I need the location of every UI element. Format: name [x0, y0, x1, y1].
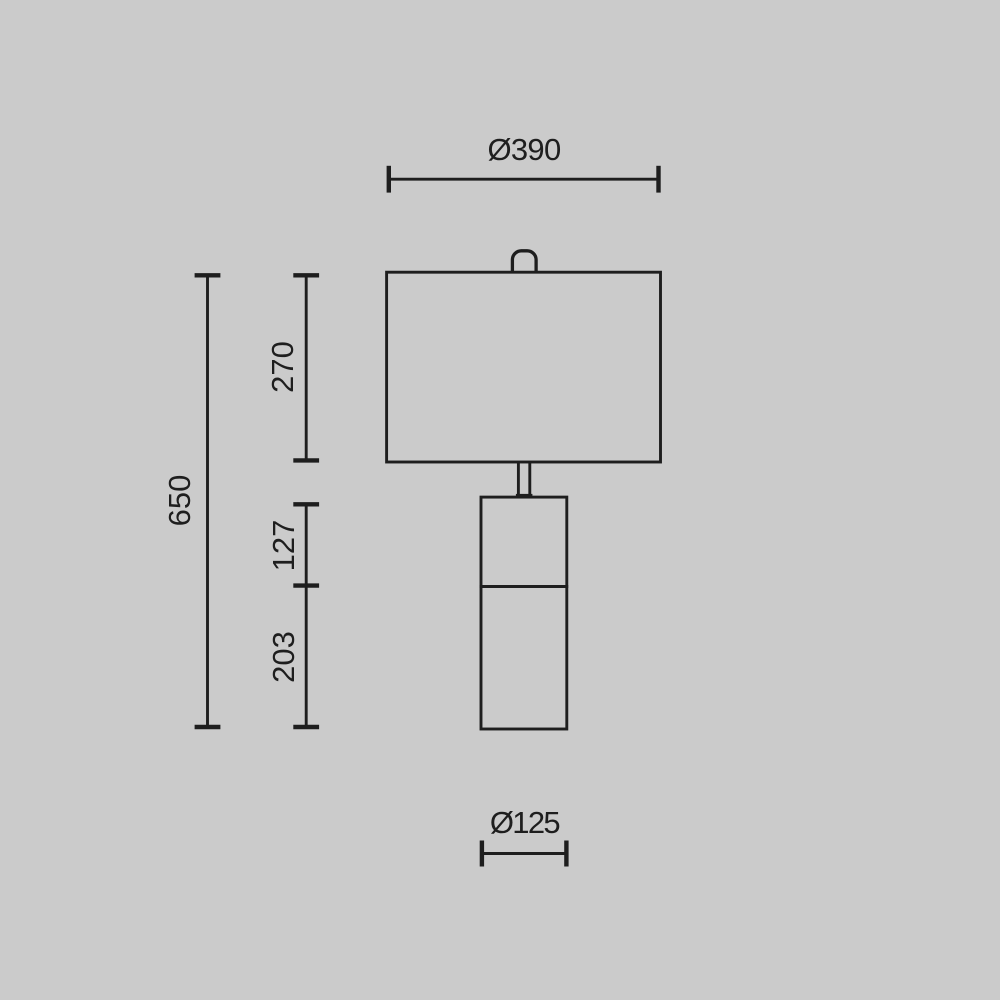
- svg-text:203: 203: [266, 631, 301, 683]
- svg-text:127: 127: [266, 520, 301, 572]
- svg-text:Ø125: Ø125: [490, 805, 559, 840]
- svg-text:Ø390: Ø390: [487, 132, 560, 167]
- svg-text:650: 650: [162, 475, 197, 527]
- svg-text:270: 270: [265, 341, 300, 393]
